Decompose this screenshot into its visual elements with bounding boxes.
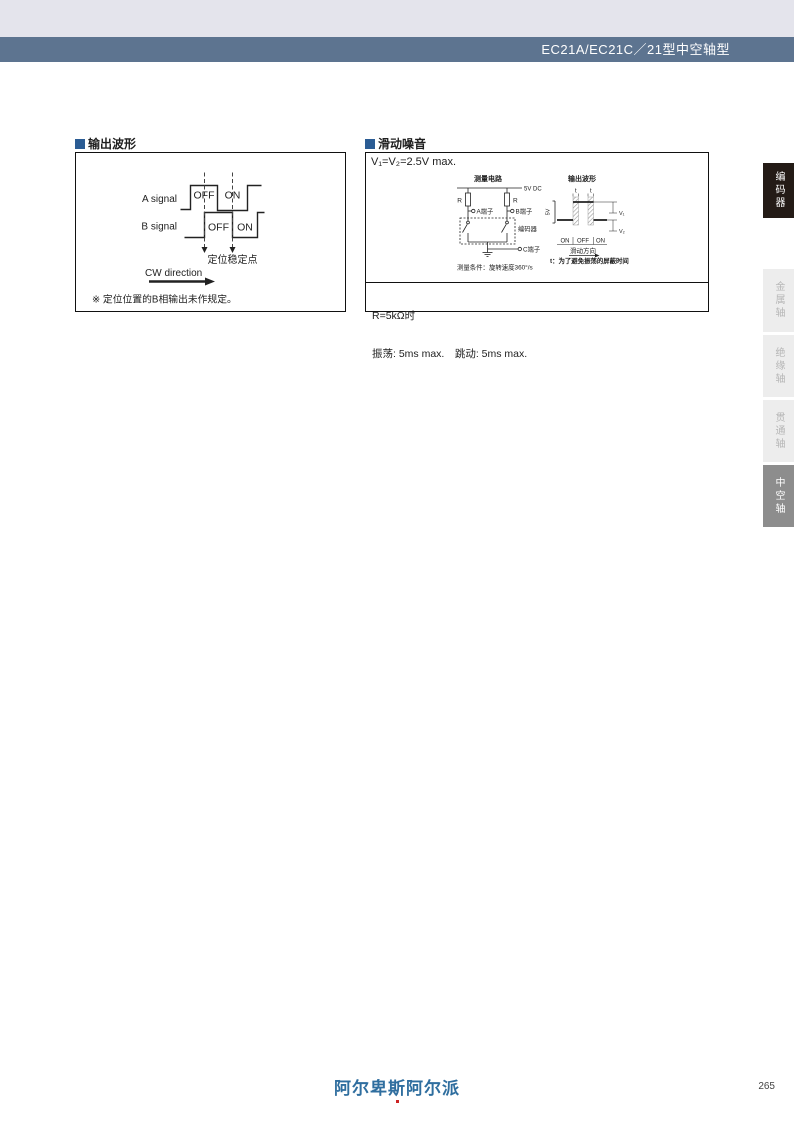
a-off-label: OFF [194,190,215,202]
sidebar-tab-insulated-shaft: 绝缘轴 [763,335,794,397]
datasheet-page: EC21A/EC21C／21型中空轴型 输出波形 A signal B sign… [0,0,794,1123]
b-on-label: ON [237,222,253,234]
r-left-label: R [457,198,462,205]
output-waveform-diagram: A signal B signal OFF ON OFF ON 定位稳定点 CW… [76,153,343,309]
down-arrow-icon [202,247,208,253]
page-title: EC21A/EC21C／21型中空轴型 [541,37,730,62]
sliding-noise-heading-label: 滑动噪音 [378,135,426,152]
output-waveform-box: A signal B signal OFF ON OFF ON 定位稳定点 CW… [75,152,346,312]
terminal-c-label: C端子 [523,245,540,254]
noise-waveform-title: 输出波形 [568,174,596,183]
output-waveform-heading: 输出波形 [75,135,136,152]
slide-direction-label: 滑动方向 [570,246,596,255]
header-bar: EC21A/EC21C／21型中空轴型 [0,37,794,62]
t-left-label: t [575,189,577,195]
sidebar-tab-hollow-shaft: 中空轴 [763,465,794,527]
sidebar-tab-through-shaft: 贯通轴 [763,400,794,462]
circuit-title: 测量电路 [474,174,503,183]
down-arrow-icon [230,247,236,253]
cw-direction-label: CW direction [145,268,202,279]
terminal-b-label: B端子 [516,207,533,216]
resistor-left [466,193,471,206]
tab-label: 绝缘轴 [771,347,786,386]
terminal-c-circle [518,247,521,250]
noise-result: R=5kΩ时 振荡: 5ms max. 跳动: 5ms max. [372,285,527,385]
page-number: 265 [758,1081,775,1092]
b-off-label: OFF [208,222,229,234]
noise-waveform-shapes [553,194,618,256]
terminal-b-circle [511,209,514,212]
switch-contact [506,221,509,224]
v2-label: V₂ [619,229,625,235]
waveform-note: ※ 定位位置的B相输出未作规定。 [92,293,237,306]
tab-label: 贯通轴 [771,412,786,451]
r-right-label: R [513,198,518,205]
measurement-diagrams: 测量电路 [446,165,646,278]
stable-point-label: 定位稳定点 [208,253,258,266]
resistor-right [505,193,510,206]
output-waveform-heading-label: 输出波形 [88,135,136,152]
terminal-a-label: A端子 [477,207,494,216]
stable-point-dashed-lines [205,173,233,248]
tab-label: 中空轴 [771,477,786,516]
on-left-label: ON [561,239,570,245]
result-line2: 振荡: 5ms max. 跳动: 5ms max. [372,348,527,361]
mask-time-note: t：为了避免振荡的屏蔽时间 [550,256,629,265]
sidebar-tab-encoder: 编码器 [763,163,794,218]
switch-blade [502,224,507,232]
tab-label: 金属轴 [771,281,786,320]
a-on-label: ON [225,190,241,202]
blue-square-icon [75,139,85,149]
a-signal-label: A signal [142,194,177,205]
box-divider [366,282,708,283]
supply-label: 5V DC [524,187,542,193]
blue-square-icon [365,139,375,149]
voltage-condition: V₁=V₂=2.5V max. [371,156,456,168]
tab-label: 编码器 [771,171,786,210]
sliding-noise-heading: 滑动噪音 [365,135,426,152]
top-band [0,0,794,37]
result-line1: R=5kΩ时 [372,310,527,323]
logo-red-dot-icon [396,1100,399,1103]
b-signal-label: B signal [141,222,177,233]
off-label: OFF [577,239,589,245]
v1-label: V₁ [619,211,625,217]
alps-logo-text: 阿尔卑斯阿尔派 [0,1074,794,1099]
t-right-label: t [590,189,592,195]
sidebar-tab-metal-shaft: 金属轴 [763,269,794,332]
measurement-condition-note: 测量条件：旋转速度360°/s [457,263,533,272]
terminal-a-circle [472,209,475,212]
right-arrow-icon [205,278,215,286]
axis-5v-label: 5V [546,208,552,215]
on-right-label: ON [596,239,605,245]
sliding-noise-box: V₁=V₂=2.5V max. 测量电路 [365,152,709,312]
switch-contact [467,221,470,224]
switch-blade [463,224,468,232]
encoder-label: 编码器 [518,224,538,233]
